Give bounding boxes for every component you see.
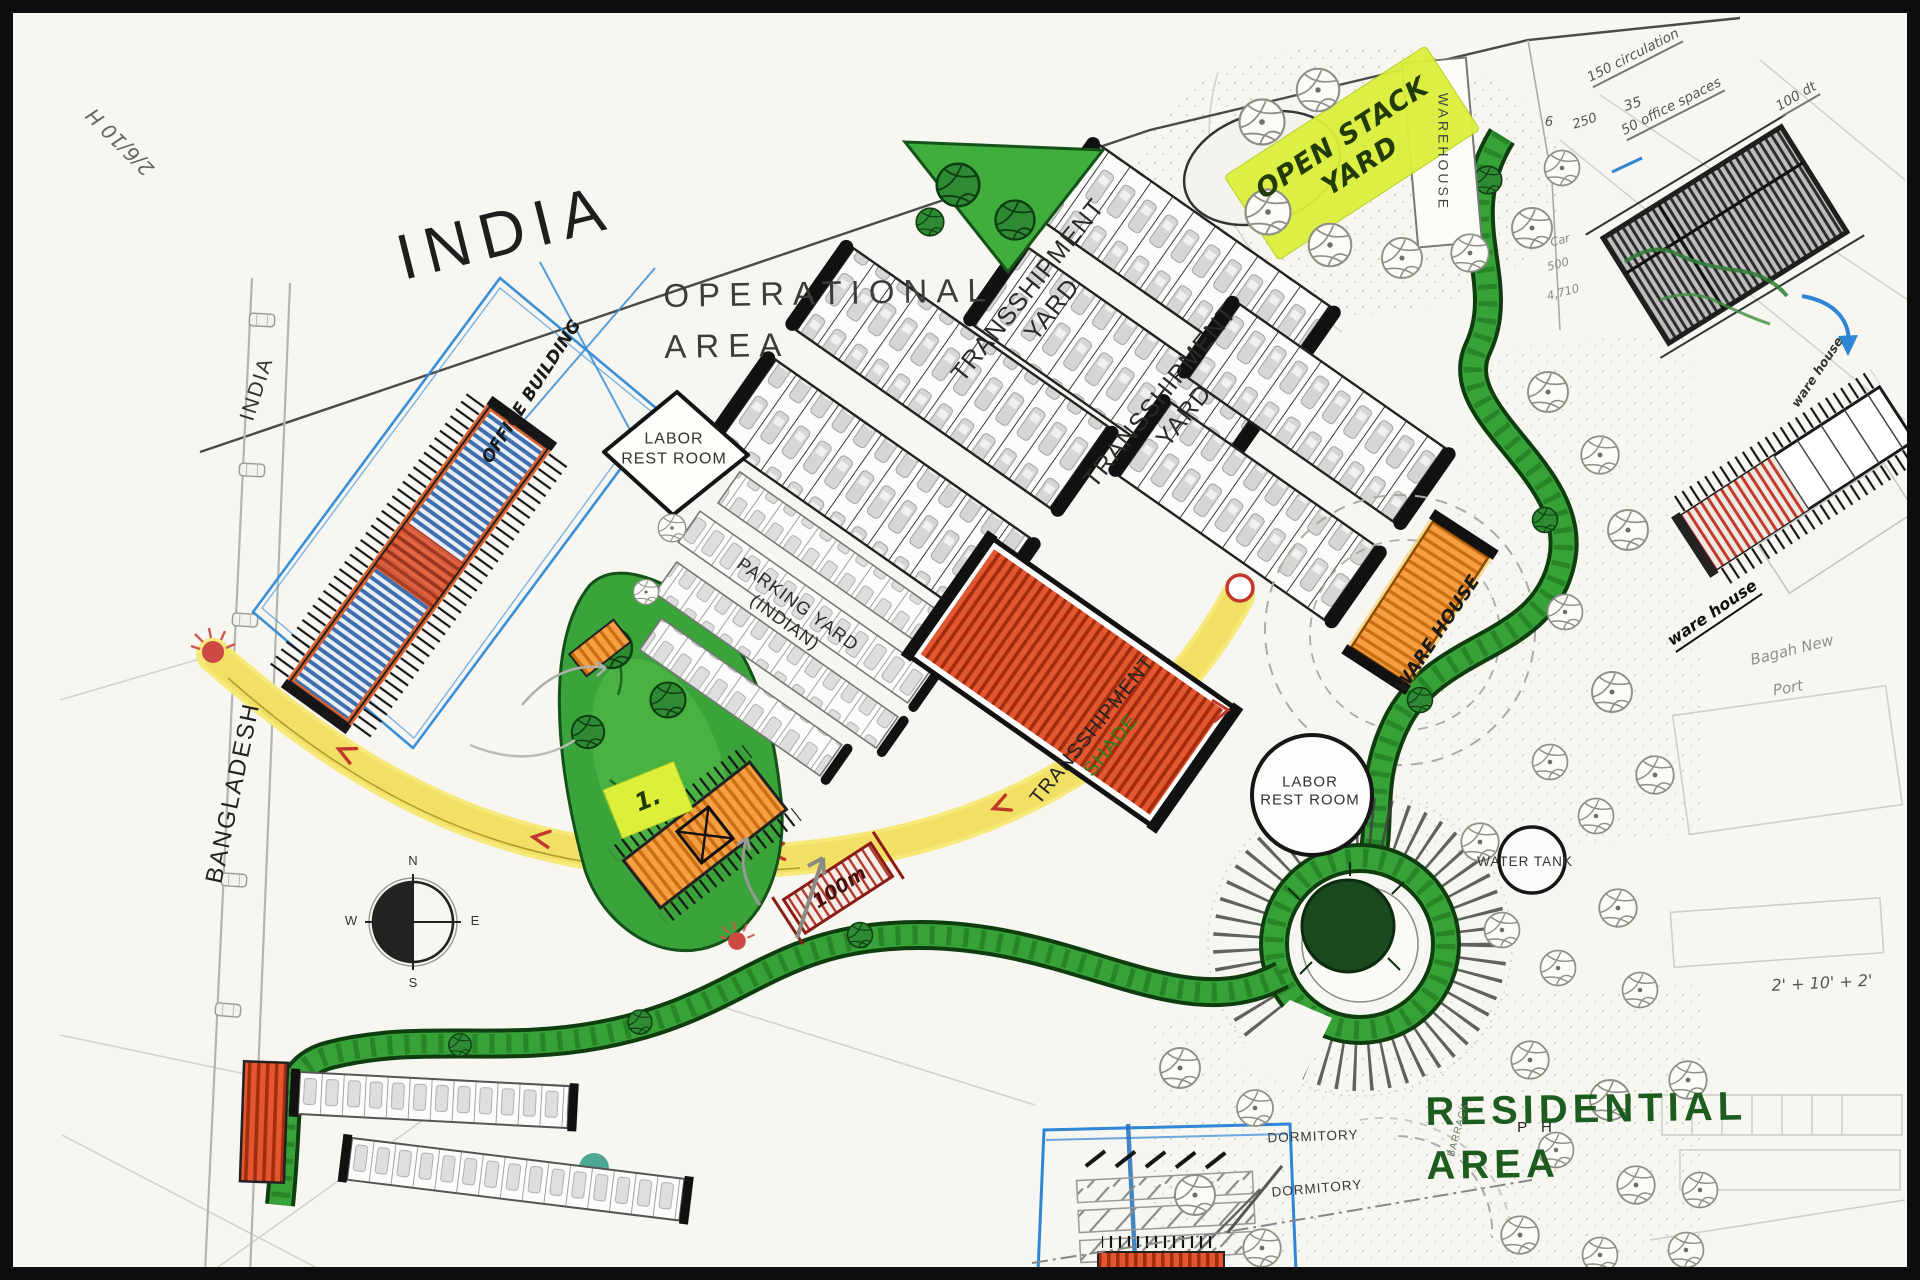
site-plan: INDIA INDIA BANGLADESH OPERATIONAL AREA … bbox=[0, 0, 1920, 1280]
warehouse-top-label: WAREHOUSE bbox=[1434, 93, 1451, 211]
compass-rose bbox=[365, 874, 461, 970]
compass-west-label: W bbox=[345, 913, 357, 929]
office-building bbox=[263, 383, 575, 747]
graphite-sketch bbox=[1584, 110, 1864, 362]
water-tank-label: WATER TANK bbox=[1477, 854, 1573, 870]
dormitory-1-label: DORMITORY bbox=[1267, 1127, 1359, 1147]
residential-area-label: RESIDENTIAL AREA bbox=[1425, 1079, 1749, 1193]
note-six: 6 bbox=[1545, 115, 1553, 131]
labor-rest-room-circle-label: LABOR REST ROOM bbox=[1260, 774, 1360, 811]
compass-north-label: N bbox=[408, 853, 417, 869]
ph-label: P H bbox=[1517, 1119, 1557, 1137]
labor-rest-room-diamond-label: LABOR REST ROOM bbox=[621, 429, 727, 468]
operational-area-label: OPERATIONAL AREA bbox=[663, 264, 996, 372]
compass-south-label: S bbox=[409, 975, 418, 991]
bottom-left-parking bbox=[240, 1061, 694, 1224]
compass-east-label: E bbox=[471, 913, 480, 929]
